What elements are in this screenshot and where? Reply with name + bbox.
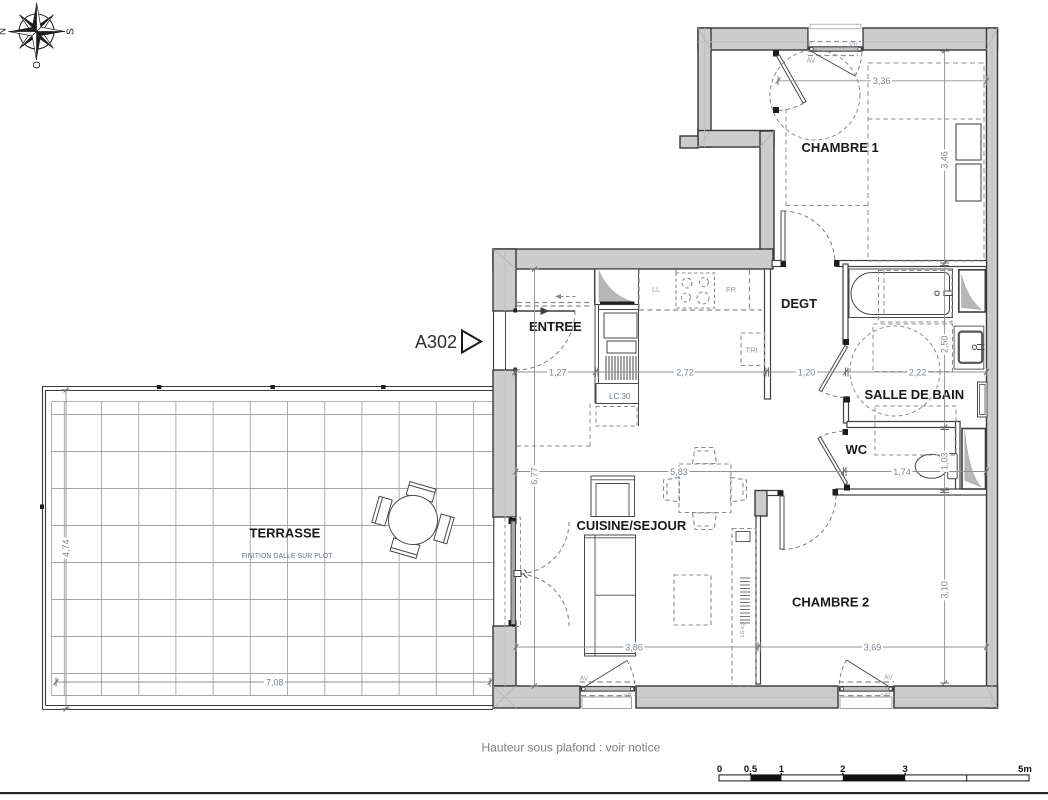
svg-text:1: 1 <box>779 764 785 775</box>
svg-text:4,74: 4,74 <box>61 539 71 557</box>
svg-text:LL: LL <box>652 285 660 294</box>
svg-text:F: F <box>809 41 813 48</box>
svg-text:VR: VR <box>849 41 858 48</box>
svg-text:Hauteur sous plafond : voir no: Hauteur sous plafond : voir notice <box>482 741 661 755</box>
svg-text:CUISINE/SEJOUR: CUISINE/SEJOUR <box>577 518 687 533</box>
svg-text:FINITION DALLE SUR PLOT: FINITION DALLE SUR PLOT <box>242 553 334 560</box>
svg-text:FR: FR <box>726 285 737 294</box>
svg-text:AV: AV <box>807 58 816 65</box>
svg-text:SALLE DE BAIN: SALLE DE BAIN <box>865 387 965 402</box>
svg-text:E: E <box>32 0 43 1</box>
svg-text:WC: WC <box>846 442 868 457</box>
svg-text:1,03: 1,03 <box>940 453 950 471</box>
svg-text:LG e.p: LG e.p <box>740 622 746 637</box>
svg-text:0: 0 <box>717 764 722 775</box>
svg-text:DEGT: DEGT <box>781 296 817 311</box>
svg-text:5,83: 5,83 <box>670 467 688 477</box>
svg-text:3,10: 3,10 <box>940 581 950 599</box>
svg-text:CHAMBRE 1: CHAMBRE 1 <box>802 140 879 155</box>
svg-text:AV: AV <box>580 676 589 683</box>
svg-text:S: S <box>66 28 77 35</box>
svg-text:ENTREE: ENTREE <box>529 319 582 334</box>
svg-text:1,74: 1,74 <box>893 467 911 477</box>
svg-text:0.5: 0.5 <box>744 764 758 775</box>
svg-text:6,77: 6,77 <box>530 467 540 485</box>
svg-text:N: N <box>0 28 9 35</box>
svg-text:VR: VR <box>624 694 633 700</box>
svg-text:5m: 5m <box>1018 764 1032 775</box>
svg-text:2: 2 <box>840 764 845 775</box>
svg-text:VR: VR <box>882 694 891 700</box>
svg-text:3,46: 3,46 <box>940 151 950 169</box>
svg-text:3: 3 <box>903 764 908 775</box>
svg-text:3,36: 3,36 <box>873 76 891 86</box>
svg-text:2,50: 2,50 <box>940 336 950 354</box>
svg-text:2,72: 2,72 <box>676 367 694 377</box>
svg-text:2,22: 2,22 <box>909 367 927 377</box>
svg-text:TERRASSE: TERRASSE <box>250 526 321 541</box>
svg-text:LC 30: LC 30 <box>609 392 631 401</box>
svg-text:7,08: 7,08 <box>266 677 284 687</box>
svg-text:TRI: TRI <box>746 346 758 355</box>
svg-text:1,27: 1,27 <box>549 367 567 377</box>
svg-text:O: O <box>32 61 43 69</box>
svg-text:3,86: 3,86 <box>625 642 643 652</box>
svg-text:3,69: 3,69 <box>864 642 882 652</box>
svg-text:A302: A302 <box>415 332 457 352</box>
svg-text:CHAMBRE 2: CHAMBRE 2 <box>792 595 869 610</box>
svg-text:1,20: 1,20 <box>798 367 816 377</box>
svg-text:AV: AV <box>884 675 893 682</box>
